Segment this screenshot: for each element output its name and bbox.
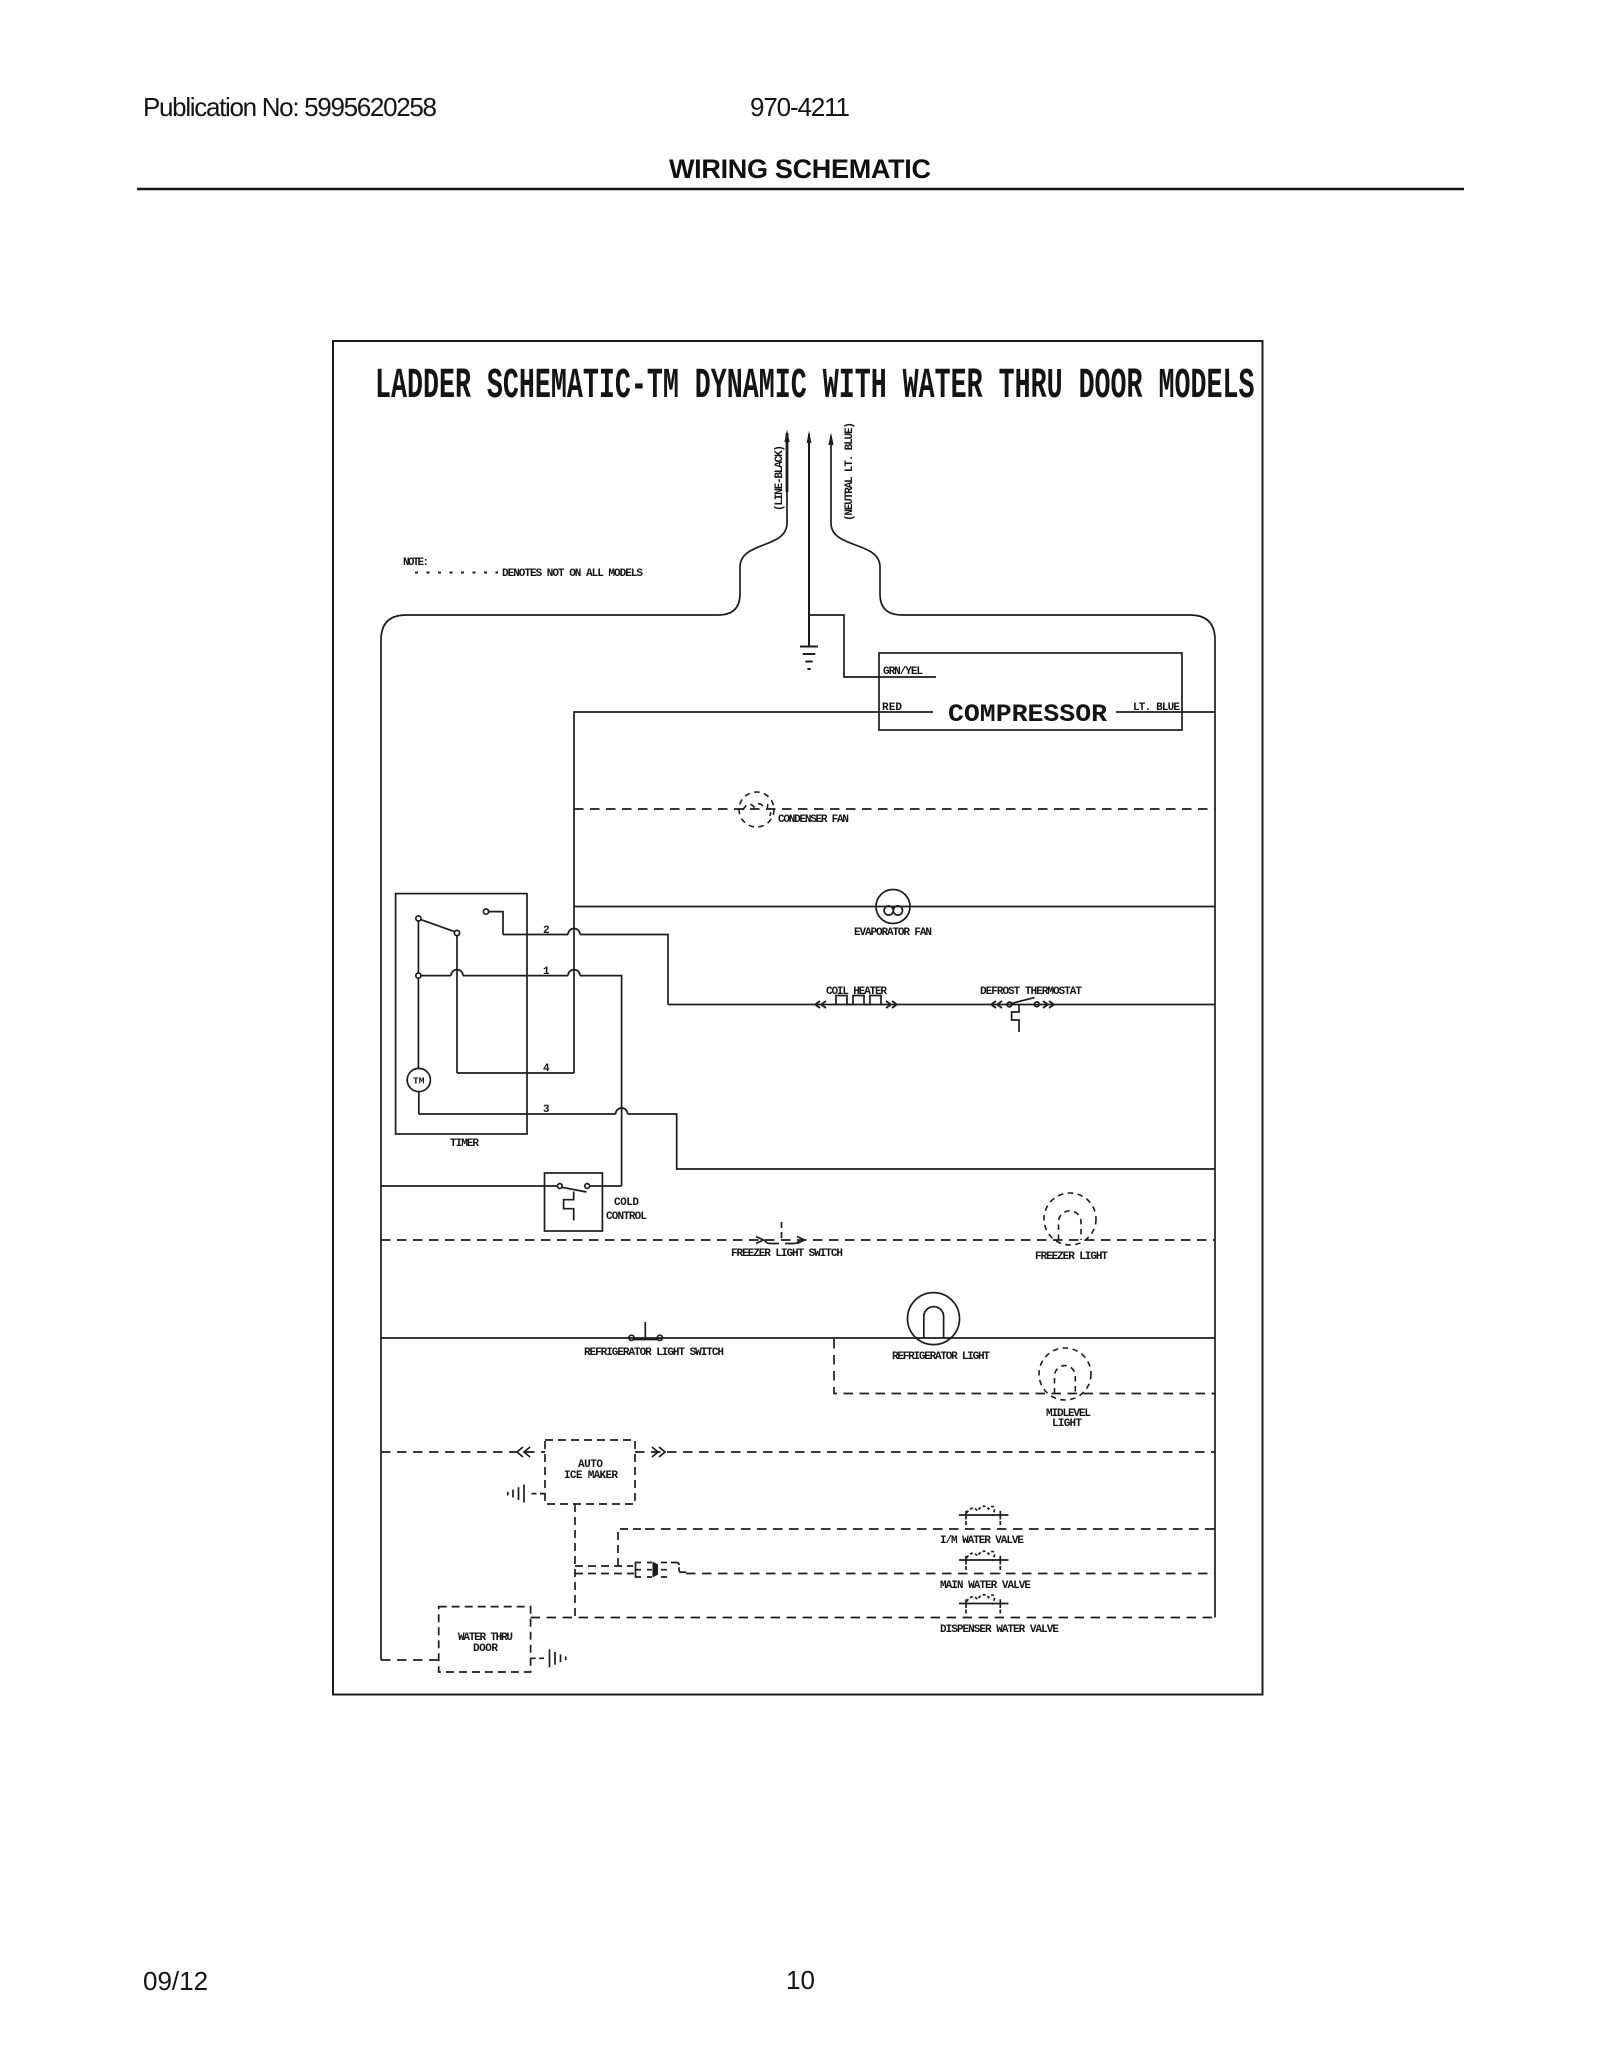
svg-text:Publication No: 5995620258: Publication No: 5995620258	[143, 92, 437, 122]
svg-text:DISPENSER WATER VALVE: DISPENSER WATER VALVE	[940, 1624, 1059, 1636]
svg-text:I/M WATER VALVE: I/M WATER VALVE	[940, 1535, 1024, 1547]
svg-text:REFRIGERATOR LIGHT SWITCH: REFRIGERATOR LIGHT SWITCH	[584, 1347, 724, 1359]
svg-text:DENOTES NOT ON ALL MODELS: DENOTES NOT ON ALL MODELS	[502, 568, 643, 580]
svg-text:DEFROST THERMOSTAT: DEFROST THERMOSTAT	[980, 986, 1082, 998]
svg-text:(LINE-BLACK): (LINE-BLACK)	[774, 445, 786, 511]
svg-text:LADDER SCHEMATIC-TM DYNAMIC WI: LADDER SCHEMATIC-TM DYNAMIC WITH WATER T…	[375, 361, 1254, 410]
svg-text:3: 3	[543, 1104, 550, 1116]
svg-text:970-4211: 970-4211	[750, 92, 850, 122]
svg-text:DOOR: DOOR	[473, 1643, 498, 1655]
svg-text:CONTROL: CONTROL	[606, 1211, 647, 1223]
svg-text:EVAPORATOR FAN: EVAPORATOR FAN	[854, 927, 932, 939]
svg-text:CONDENSER FAN: CONDENSER FAN	[778, 814, 849, 826]
svg-text:COLD: COLD	[614, 1197, 639, 1209]
svg-text:2: 2	[543, 925, 550, 937]
svg-text:WIRING SCHEMATIC: WIRING SCHEMATIC	[669, 154, 931, 184]
svg-text:REFRIGERATOR LIGHT: REFRIGERATOR LIGHT	[892, 1351, 990, 1363]
svg-text:COMPRESSOR: COMPRESSOR	[948, 700, 1107, 729]
svg-text:GRN/YEL: GRN/YEL	[883, 666, 923, 678]
svg-text:ICE MAKER: ICE MAKER	[564, 1470, 618, 1482]
svg-text:LT. BLUE: LT. BLUE	[1133, 702, 1180, 714]
svg-text:TIMER: TIMER	[450, 1138, 479, 1150]
svg-text:RED: RED	[882, 702, 902, 714]
svg-text:LIGHT: LIGHT	[1052, 1418, 1082, 1430]
svg-text:1: 1	[543, 966, 550, 978]
svg-text:(NEUTRAL LT. BLUE): (NEUTRAL LT. BLUE)	[844, 422, 856, 521]
svg-text:MAIN WATER VALVE: MAIN WATER VALVE	[940, 1580, 1031, 1592]
svg-text:TM: TM	[413, 1076, 425, 1087]
svg-text:4: 4	[543, 1063, 550, 1075]
svg-text:NOTE:: NOTE:	[403, 557, 429, 569]
svg-text:FREEZER LIGHT SWITCH: FREEZER LIGHT SWITCH	[731, 1248, 843, 1260]
svg-text:09/12: 09/12	[143, 1966, 208, 1996]
svg-text:10: 10	[786, 1965, 815, 1995]
svg-text:FREEZER LIGHT: FREEZER LIGHT	[1035, 1251, 1108, 1263]
